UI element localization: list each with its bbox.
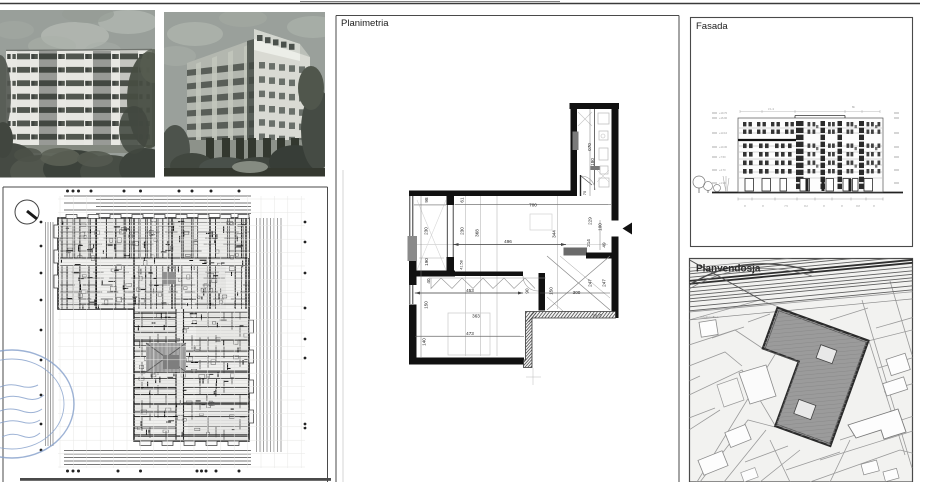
svg-text:98: 98 — [424, 197, 429, 203]
svg-text:Fasada: Fasada — [696, 21, 728, 32]
svg-text:+1.90: +1.90 — [719, 181, 726, 185]
svg-text:61: 61 — [459, 197, 464, 203]
svg-text:368: 368 — [475, 229, 480, 237]
svg-text:8.2: 8.2 — [804, 204, 808, 208]
svg-text:140: 140 — [422, 338, 427, 346]
svg-text:230: 230 — [424, 227, 429, 235]
svg-text:+4.70: +4.70 — [719, 168, 726, 172]
svg-text:300: 300 — [573, 290, 581, 295]
svg-text:453: 453 — [466, 288, 474, 293]
svg-text:100: 100 — [598, 223, 603, 231]
svg-text:7/100: 7/100 — [742, 289, 750, 293]
svg-text:SB.05: SB.05 — [592, 314, 601, 318]
svg-text:+7.50: +7.50 — [719, 155, 726, 159]
svg-text:+13.10: +13.10 — [719, 131, 728, 135]
svg-text:344: 344 — [552, 230, 557, 238]
svg-text:3 1-3: 3 1-3 — [768, 107, 774, 111]
svg-text:+10.30: +10.30 — [719, 145, 728, 149]
svg-text:473: 473 — [466, 331, 474, 336]
svg-text:41.58: 41.58 — [460, 260, 464, 270]
svg-text:496: 496 — [504, 239, 512, 244]
svg-text:75: 75 — [582, 190, 587, 195]
svg-text:8.8: 8.8 — [856, 204, 860, 208]
svg-text:070: 070 — [587, 143, 592, 151]
svg-text:247: 247 — [588, 279, 593, 287]
svg-text:Planvendosja: Planvendosja — [696, 264, 761, 275]
svg-text:Planimetria: Planimetria — [341, 18, 389, 29]
svg-text:49: 49 — [602, 242, 607, 248]
svg-text:214: 214 — [586, 239, 591, 247]
svg-text:229: 229 — [588, 217, 593, 225]
svg-text:700: 700 — [529, 203, 537, 208]
svg-text:190: 190 — [424, 258, 429, 266]
svg-text:247: 247 — [602, 279, 607, 287]
svg-text:150: 150 — [549, 287, 554, 295]
svg-text:+19.70: +19.70 — [719, 111, 728, 115]
svg-text:40: 40 — [426, 278, 431, 284]
svg-text:150: 150 — [424, 301, 429, 309]
svg-text:363: 363 — [472, 314, 480, 319]
svg-text:230: 230 — [459, 227, 464, 235]
svg-text:+16.90: +16.90 — [719, 116, 728, 120]
svg-text:180: 180 — [590, 158, 595, 166]
svg-text:7.5: 7.5 — [784, 204, 788, 208]
svg-text:90: 90 — [525, 288, 530, 294]
